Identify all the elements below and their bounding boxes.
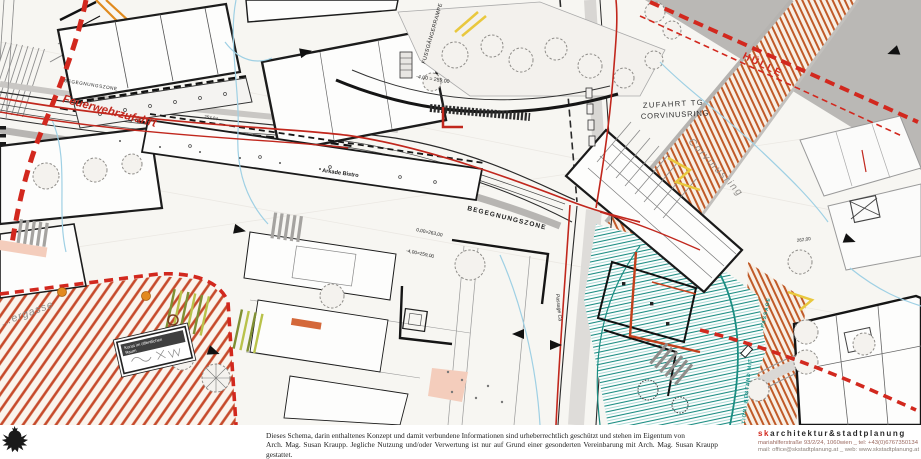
car-symbol [589, 136, 595, 146]
firm-contact: mail: office@skstadtplanung.at _ web: ww… [758, 447, 918, 453]
car-symbol [586, 88, 592, 98]
stairs-symbol [400, 52, 412, 78]
firm-name-sk: sk [758, 429, 770, 438]
firm-address: mariahilferstraße 93/2/24, 1060wien _ te… [758, 440, 918, 446]
firm-name: skarchitektur&stadtplanung [758, 429, 918, 438]
orange-tree-dot [58, 288, 67, 297]
car-symbol [587, 104, 593, 114]
site-plan-canvas: Kunst im öffentlichen Raum BEGEGNUNGSZON… [0, 0, 921, 425]
eagle-logo-icon [0, 425, 28, 453]
firm-name-rest: architektur&stadtplanung [770, 429, 906, 438]
title-block-footer: Dieses Schema, darin enthaltenes Konzept… [0, 425, 921, 459]
orange-tree-dot [142, 292, 151, 301]
disclaimer-line-1: Dieses Schema, darin enthaltenes Konzept… [266, 431, 718, 440]
tree-spokes [202, 364, 230, 392]
plan-sheet: Kunst im öffentlichen Raum BEGEGNUNGSZON… [0, 0, 921, 459]
copyright-disclaimer: Dieses Schema, darin enthaltenes Konzept… [266, 431, 718, 459]
disclaimer-line-2: Arch. Mag. Susan Kraupp. Jegliche Nutzun… [266, 440, 718, 459]
car-symbol [588, 120, 594, 130]
firm-block: skarchitektur&stadtplanung mariahilferst… [758, 429, 918, 453]
